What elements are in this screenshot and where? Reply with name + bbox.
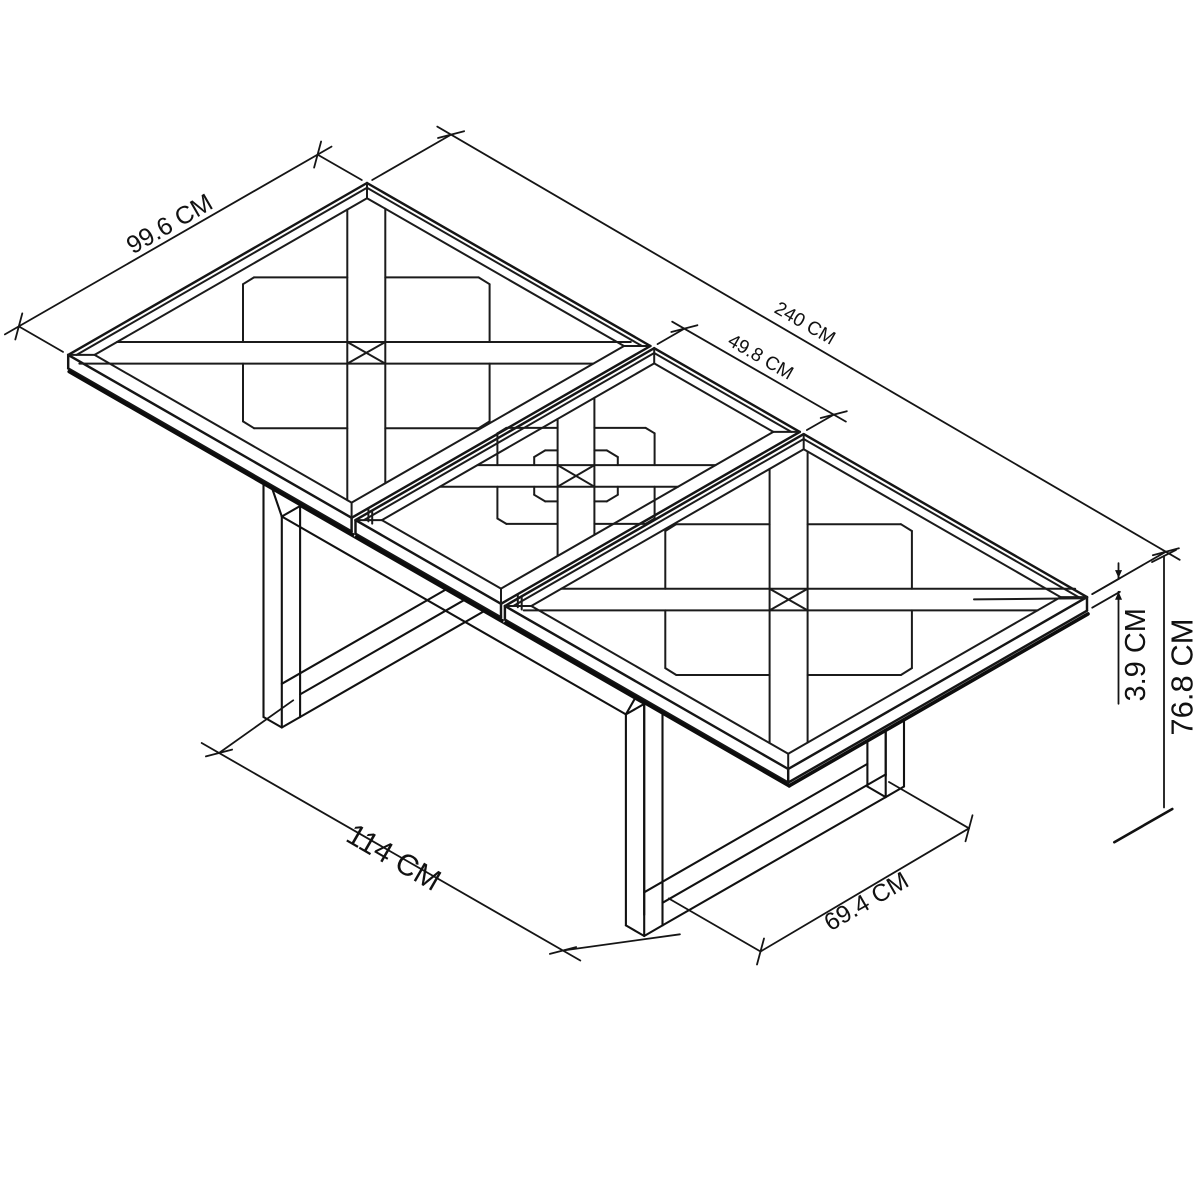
svg-text:76.8 CM: 76.8 CM: [1164, 618, 1199, 735]
svg-text:3.9 CM: 3.9 CM: [1120, 608, 1152, 701]
